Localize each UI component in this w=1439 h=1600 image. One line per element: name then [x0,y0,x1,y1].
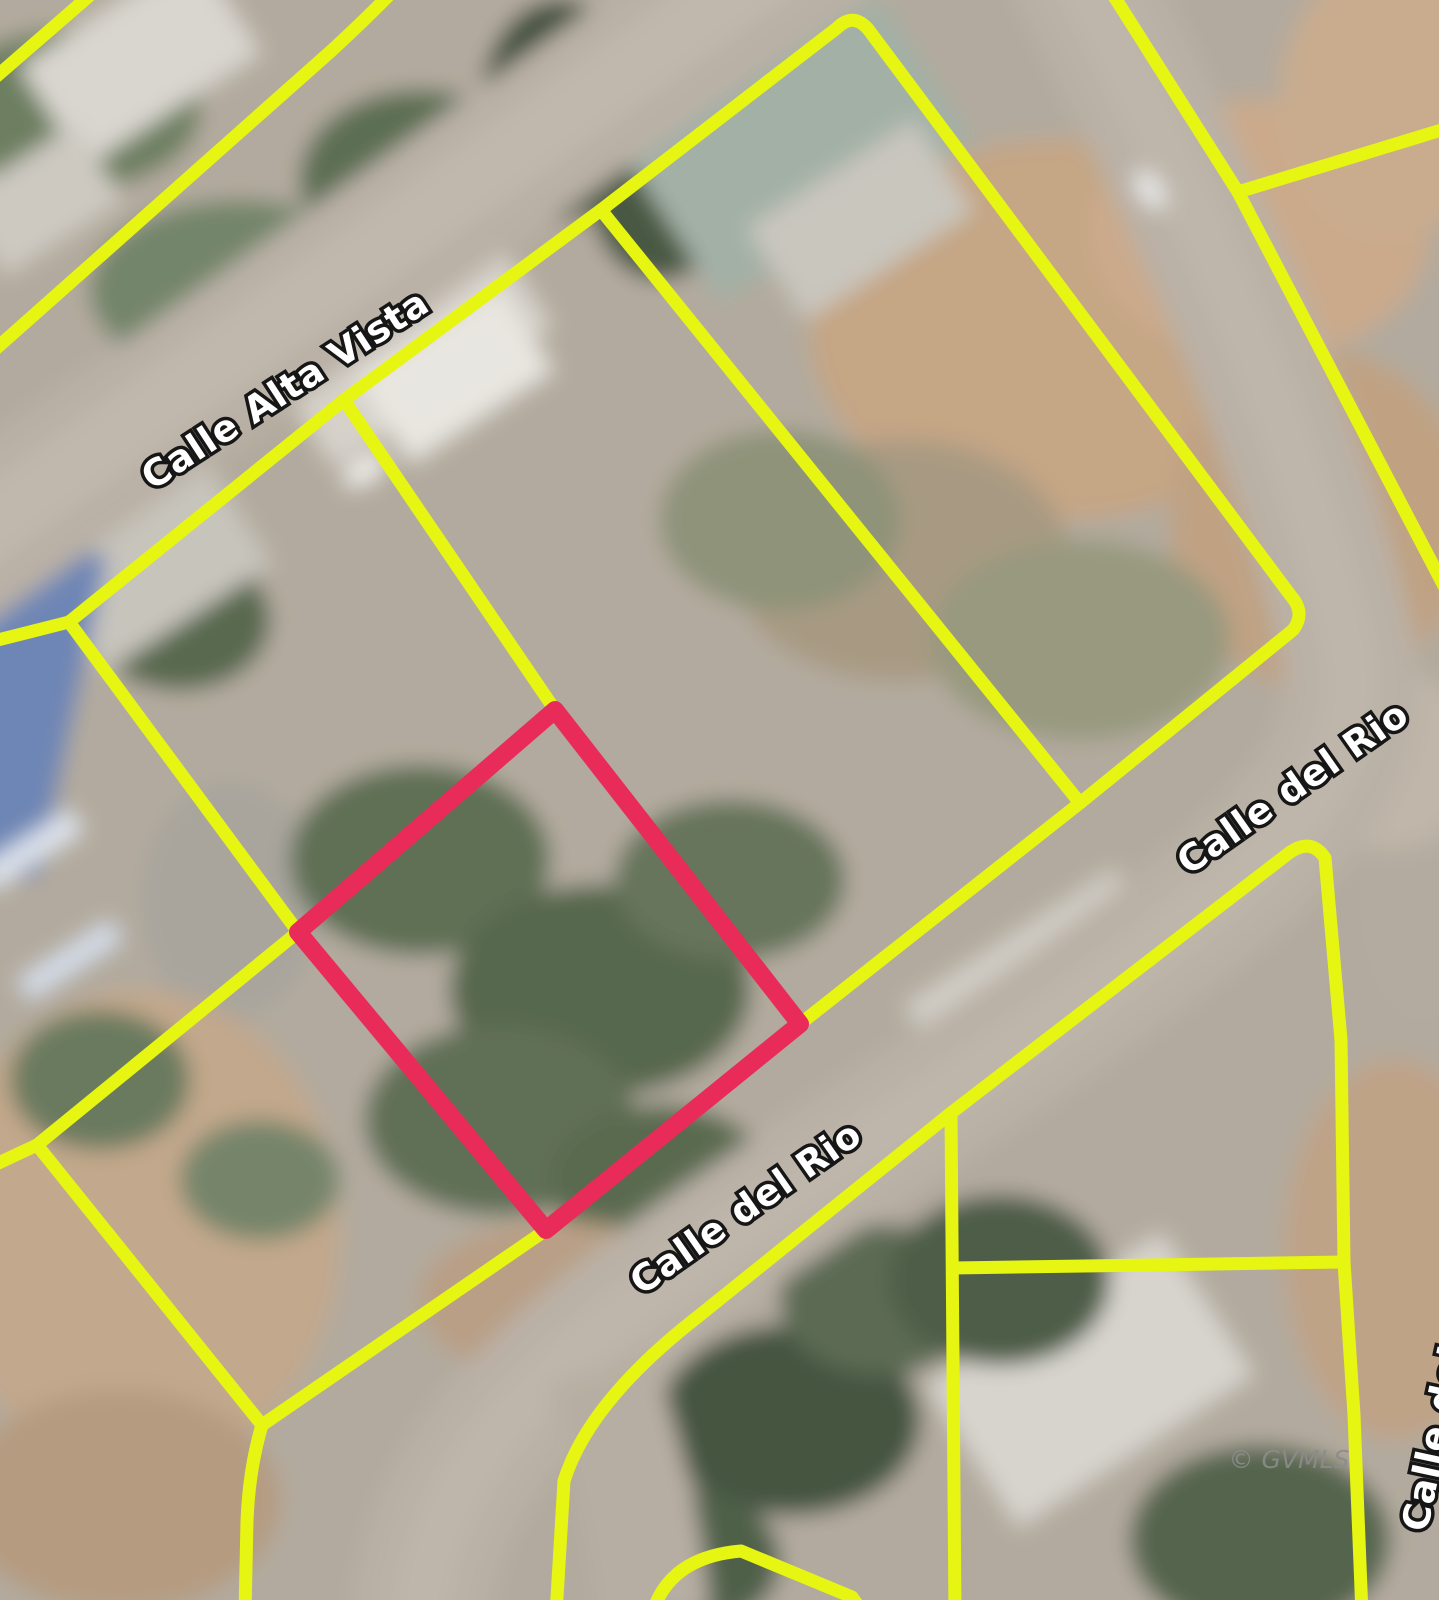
watermark: © GVMLS [1229,1445,1350,1474]
aerial-parcel-map: Calle Alta Vista Calle del Rio Calle del… [0,0,1439,1600]
parcel-line [951,1113,955,1600]
parcel-divider [953,1262,1344,1268]
map-canvas: Calle Alta Vista Calle del Rio Calle del… [0,0,1439,1600]
